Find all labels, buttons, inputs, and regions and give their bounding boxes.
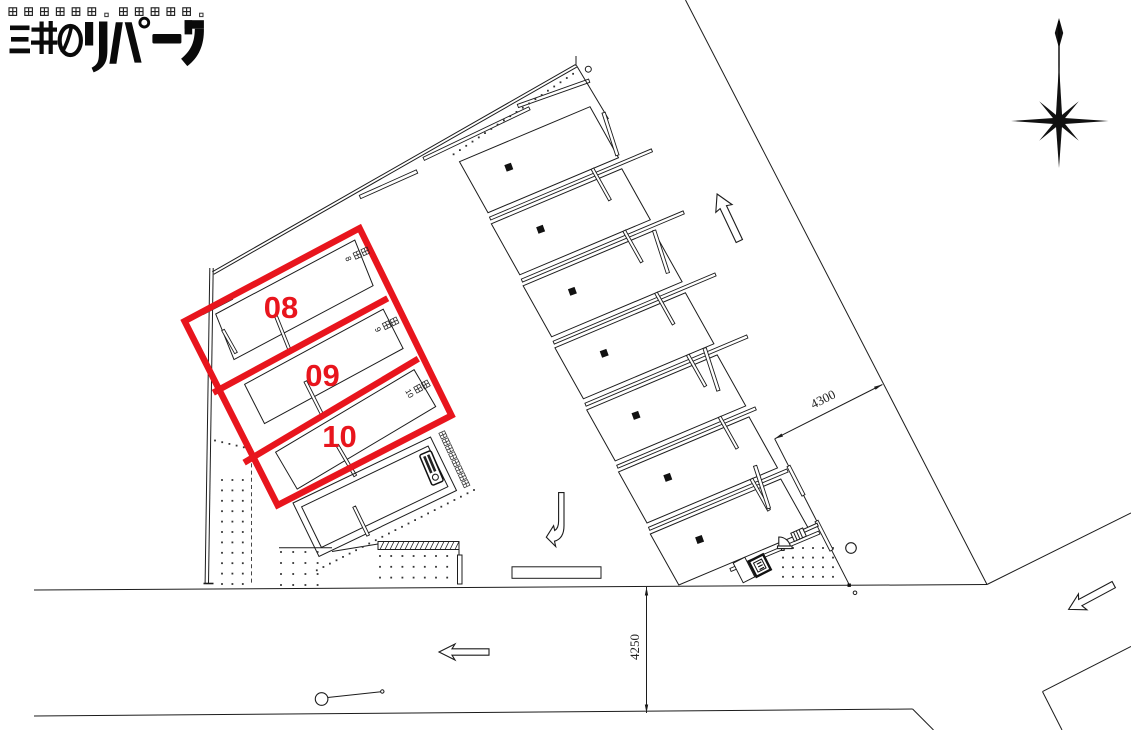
svg-text:09: 09 bbox=[305, 358, 339, 393]
svg-text:4250: 4250 bbox=[627, 634, 642, 660]
svg-text:08: 08 bbox=[264, 290, 298, 325]
svg-text:10: 10 bbox=[322, 419, 356, 454]
